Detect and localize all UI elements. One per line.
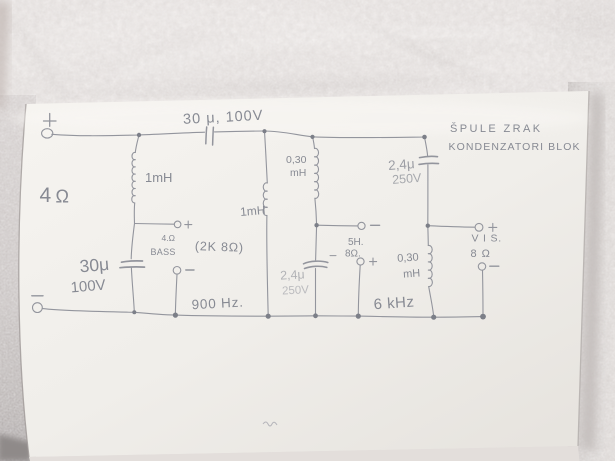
svg-text:6 kHz: 6 kHz (373, 293, 415, 313)
svg-text:ŠPULE ZRAK: ŠPULE ZRAK (450, 122, 542, 135)
svg-text:BASS: BASS (151, 247, 176, 257)
svg-text:250V: 250V (282, 284, 310, 297)
svg-text:Ω: Ω (56, 187, 69, 207)
svg-text:1mH: 1mH (145, 170, 172, 185)
svg-text:mH: mH (403, 267, 421, 280)
svg-text:30μ: 30μ (79, 254, 110, 277)
svg-text:900 Hz.: 900 Hz. (191, 295, 244, 313)
svg-text:2,4μ: 2,4μ (388, 156, 416, 173)
svg-text:0,30: 0,30 (286, 154, 307, 166)
svg-text:4: 4 (40, 184, 52, 207)
svg-text:0,30: 0,30 (397, 251, 419, 264)
svg-text:(2K 8Ω): (2K 8Ω) (195, 239, 244, 255)
svg-text:100V: 100V (70, 276, 106, 296)
svg-text:1mH: 1mH (240, 203, 266, 219)
svg-text:4.Ω: 4.Ω (162, 233, 175, 243)
svg-text:KONDENZATORI BLOK: KONDENZATORI BLOK (449, 141, 581, 153)
svg-text:8Ω.: 8Ω. (345, 249, 361, 260)
svg-text:V I S.: V I S. (472, 233, 502, 245)
svg-text:2,4μ: 2,4μ (280, 267, 305, 282)
svg-text:5H.: 5H. (348, 237, 364, 248)
svg-text:8 Ω: 8 Ω (471, 248, 491, 260)
svg-text:250V: 250V (392, 171, 423, 187)
svg-text:mH: mH (290, 167, 306, 179)
